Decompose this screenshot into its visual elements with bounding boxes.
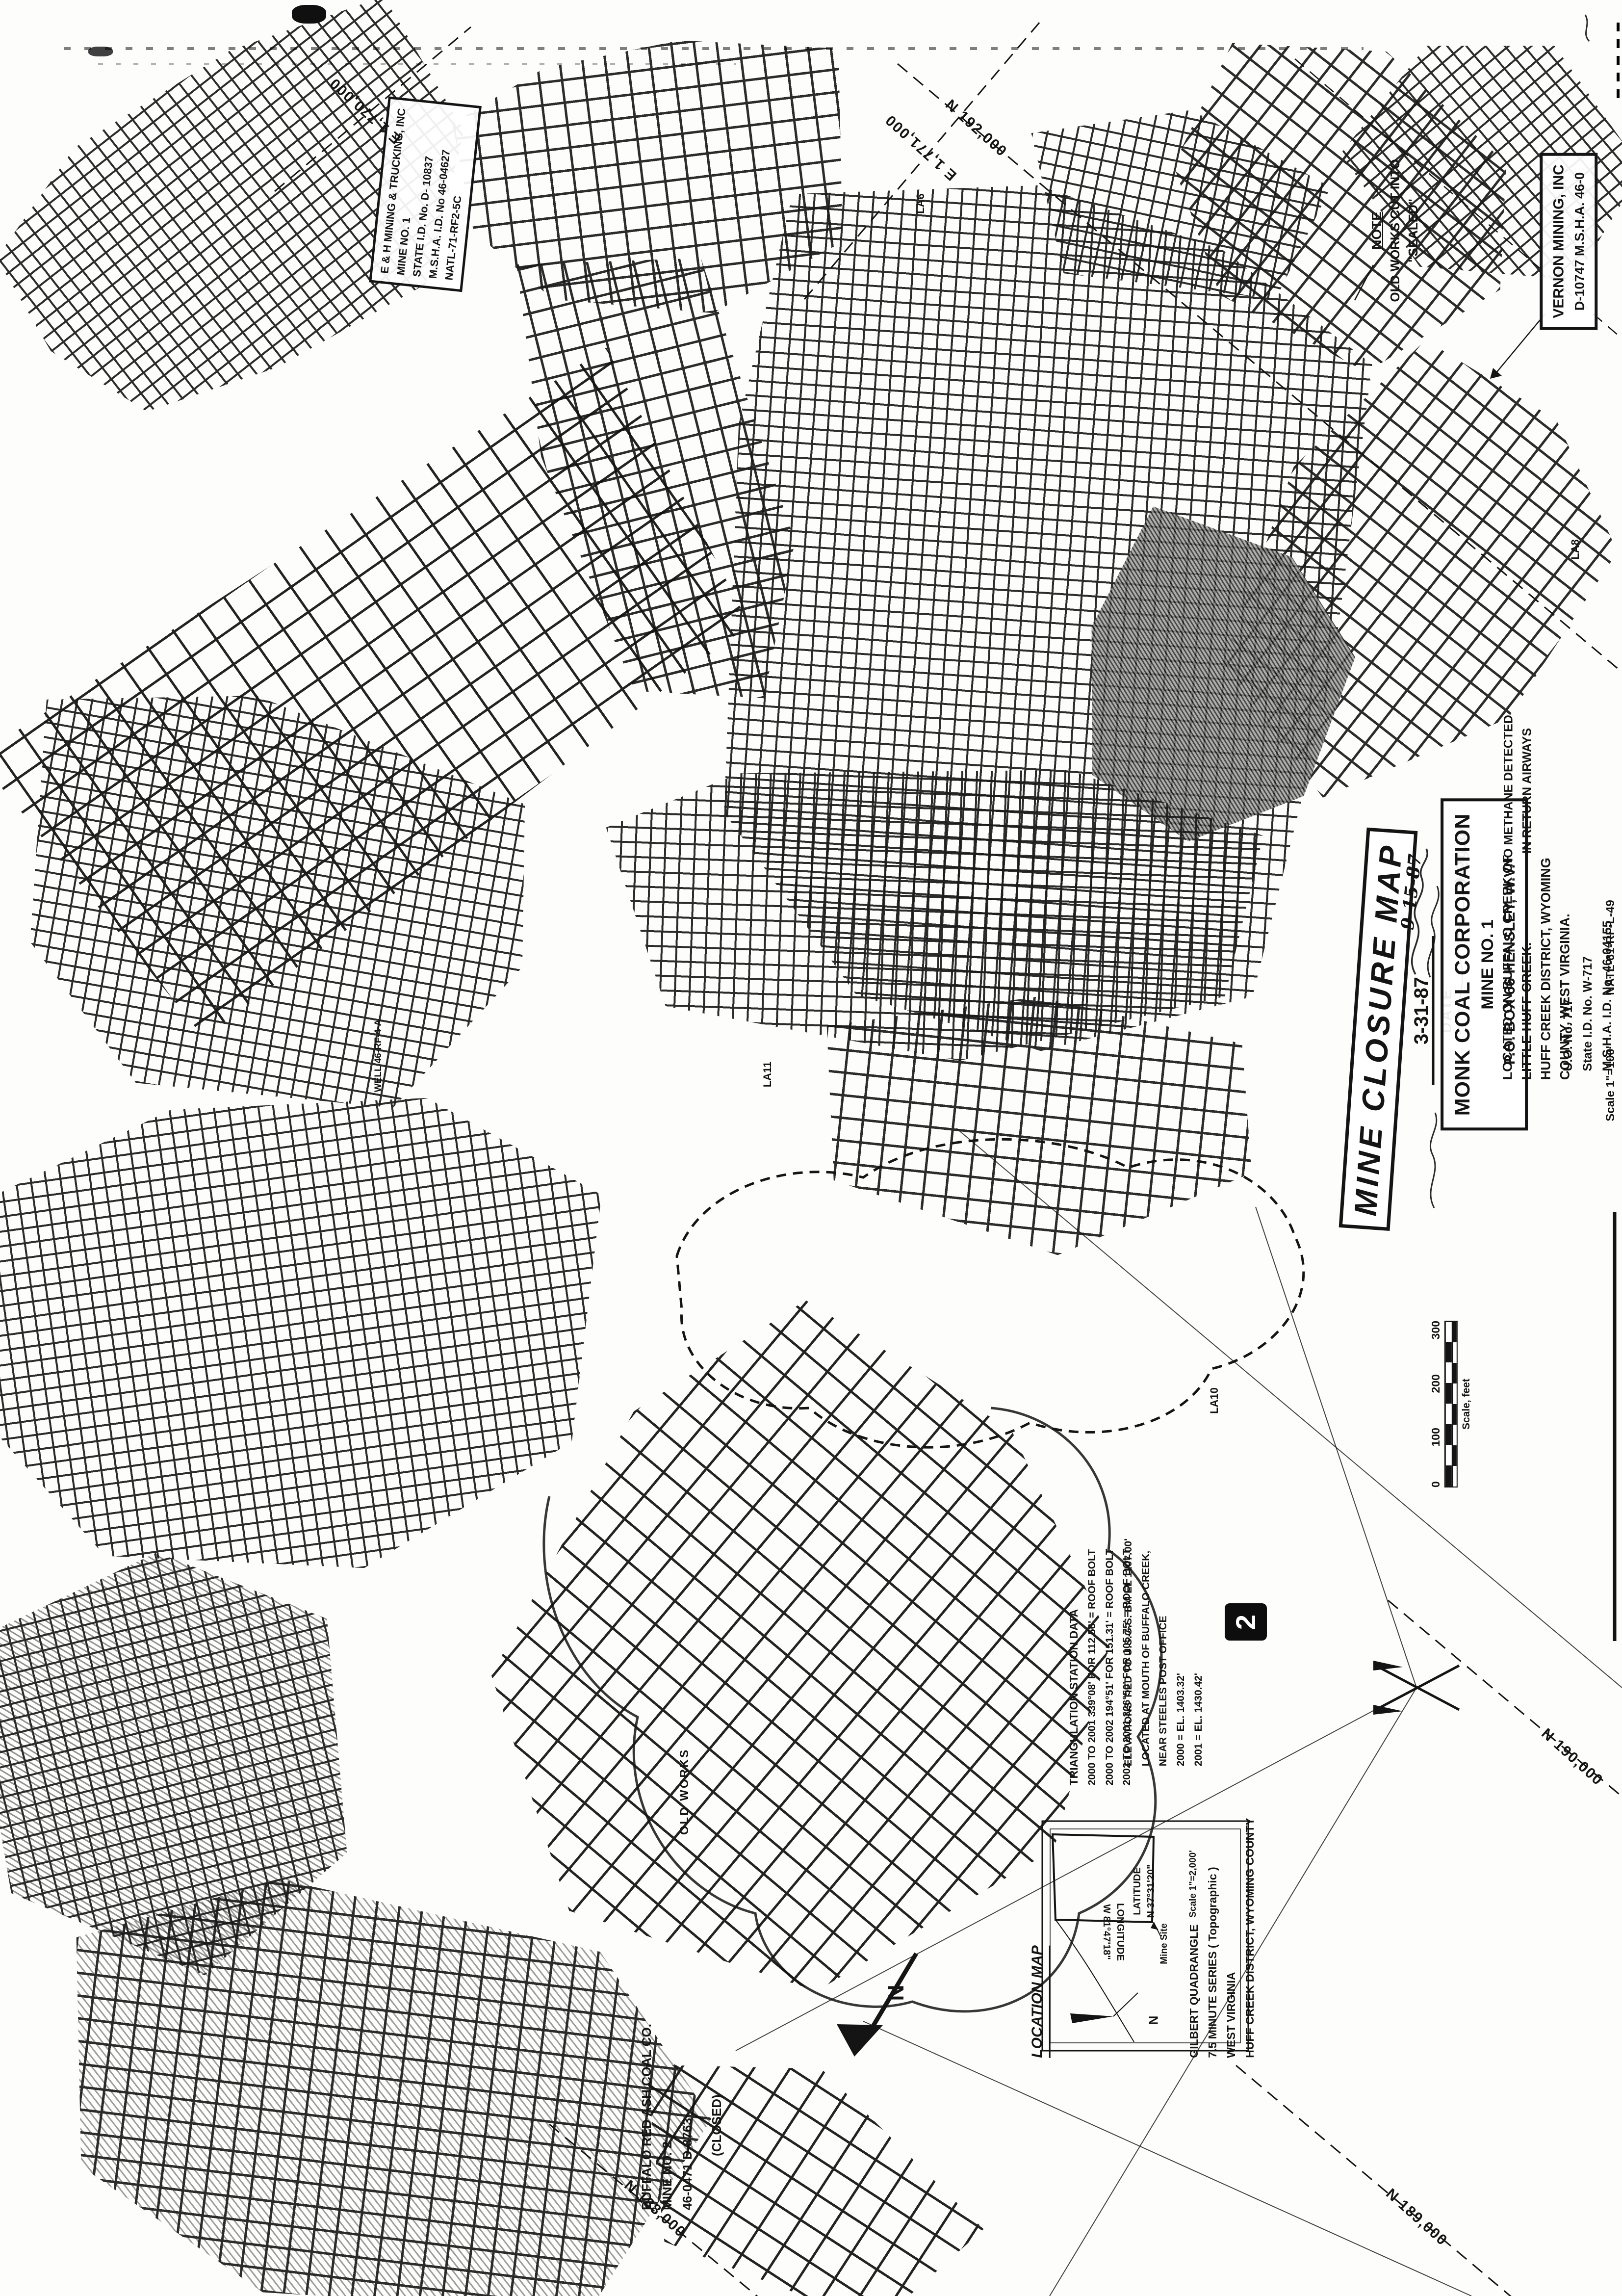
scale-bar-rule (1444, 1321, 1453, 1487)
mine-closure-map-scan: MINE CLOSURE MAP 3-31-87 DATE 9-15-87 9-… (0, 0, 1622, 2296)
triangulation-title: TRIANGULATION STATION DATA (1064, 1549, 1083, 1786)
date-value: 3-31-87 (1408, 977, 1435, 1044)
survey-line (863, 2021, 1471, 2296)
company-mine-no: MINE NO. 1 (1477, 813, 1499, 1116)
sheet-number-marker: 2 (1225, 1603, 1267, 1641)
uo-number: U.O. No. 717 (1558, 920, 1578, 1071)
survey-line (956, 1128, 1622, 1688)
location-map-north-letter: N (1145, 2016, 1162, 2025)
gridline-n189000 (1236, 2065, 1589, 2296)
elevations-data: ELEVATIONS TIED TO U.S.G.S. BM EL 1107.0… (1120, 1539, 1207, 1766)
benchmark-symbol (1376, 1666, 1459, 1710)
scan-smudge (292, 5, 326, 24)
well-label: WELL 46-RF-4-A (372, 1019, 385, 1092)
old-works-label: OLD WORKS (677, 1748, 693, 1835)
vernon-leader-arrowhead (1490, 368, 1502, 379)
benchmark-flag (1373, 1705, 1403, 1715)
note-old-works: NOTE OLD WORKS CUT INTO "SEALED" (1367, 159, 1422, 302)
drawing-number: NATL-61-RF-L-49 (1604, 900, 1617, 995)
survey-label-la10: LA10 (1207, 1387, 1222, 1414)
mine-site-label: Mine Site (1158, 1923, 1171, 1964)
scale-bar: 0 100 200 300 Scale, feet (1428, 1321, 1473, 1487)
scale-note: Scale 1"=100' (1604, 1046, 1617, 1122)
benchmark-flag (1373, 1661, 1403, 1670)
latitude-label: LATITUDE N 37°31'20" (1131, 1865, 1158, 1918)
state-id-number: State I.D. No. W-717 (1578, 920, 1597, 1071)
no-methane-note: NO METHANE DETECTED IN RETURN AIRWAYS (1500, 715, 1537, 867)
north-arrow-label: N (880, 1984, 911, 2001)
vernon-mining-box: VERNON MINING, INC D-10747 M.S.H.A. 46-0 (1540, 153, 1597, 330)
north-arrow-head (837, 2024, 883, 2057)
survey-line (1256, 1207, 1416, 1688)
scale-bar-ticks: 0 100 200 300 (1428, 1321, 1444, 1487)
scale-bar-caption: Scale, feet (1460, 1321, 1473, 1487)
longitude-label: LONGITUDE W 81°47'18" (1100, 1903, 1127, 1961)
location-map-title: LOCATION MAP (1028, 1945, 1051, 2058)
survey-label-la8: LA8 (1568, 539, 1583, 560)
survey-label-la11: LA11 (760, 1062, 775, 1088)
scale-and-drawing-no: Scale 1"=100' NATL-61-RF-L-49 (1603, 900, 1619, 1121)
location-map-arrowhead (1070, 2013, 1113, 2023)
scan-dotted-band (98, 63, 736, 65)
scan-edge-dashes (1617, 20, 1620, 98)
gridline-n192000 (898, 64, 1622, 672)
buffalo-red-ash-label: BUFFALO RED ASH COAL CO. MINE NO. 2 46-0… (637, 2024, 727, 2210)
scale-bar-rule-2 (1453, 1321, 1458, 1487)
quadrangle-info: GILBERT QUADRANGLE 7.5 MINUTE SERIES ( T… (1185, 1818, 1260, 2058)
survey-label-la6: LA6 (913, 193, 928, 214)
scan-dotted-band (64, 47, 1364, 50)
company-name: MONK COAL CORPORATION (1448, 813, 1477, 1116)
vernon-leader-line (1497, 314, 1545, 372)
location-map-arrow-line (1113, 1993, 1138, 2016)
